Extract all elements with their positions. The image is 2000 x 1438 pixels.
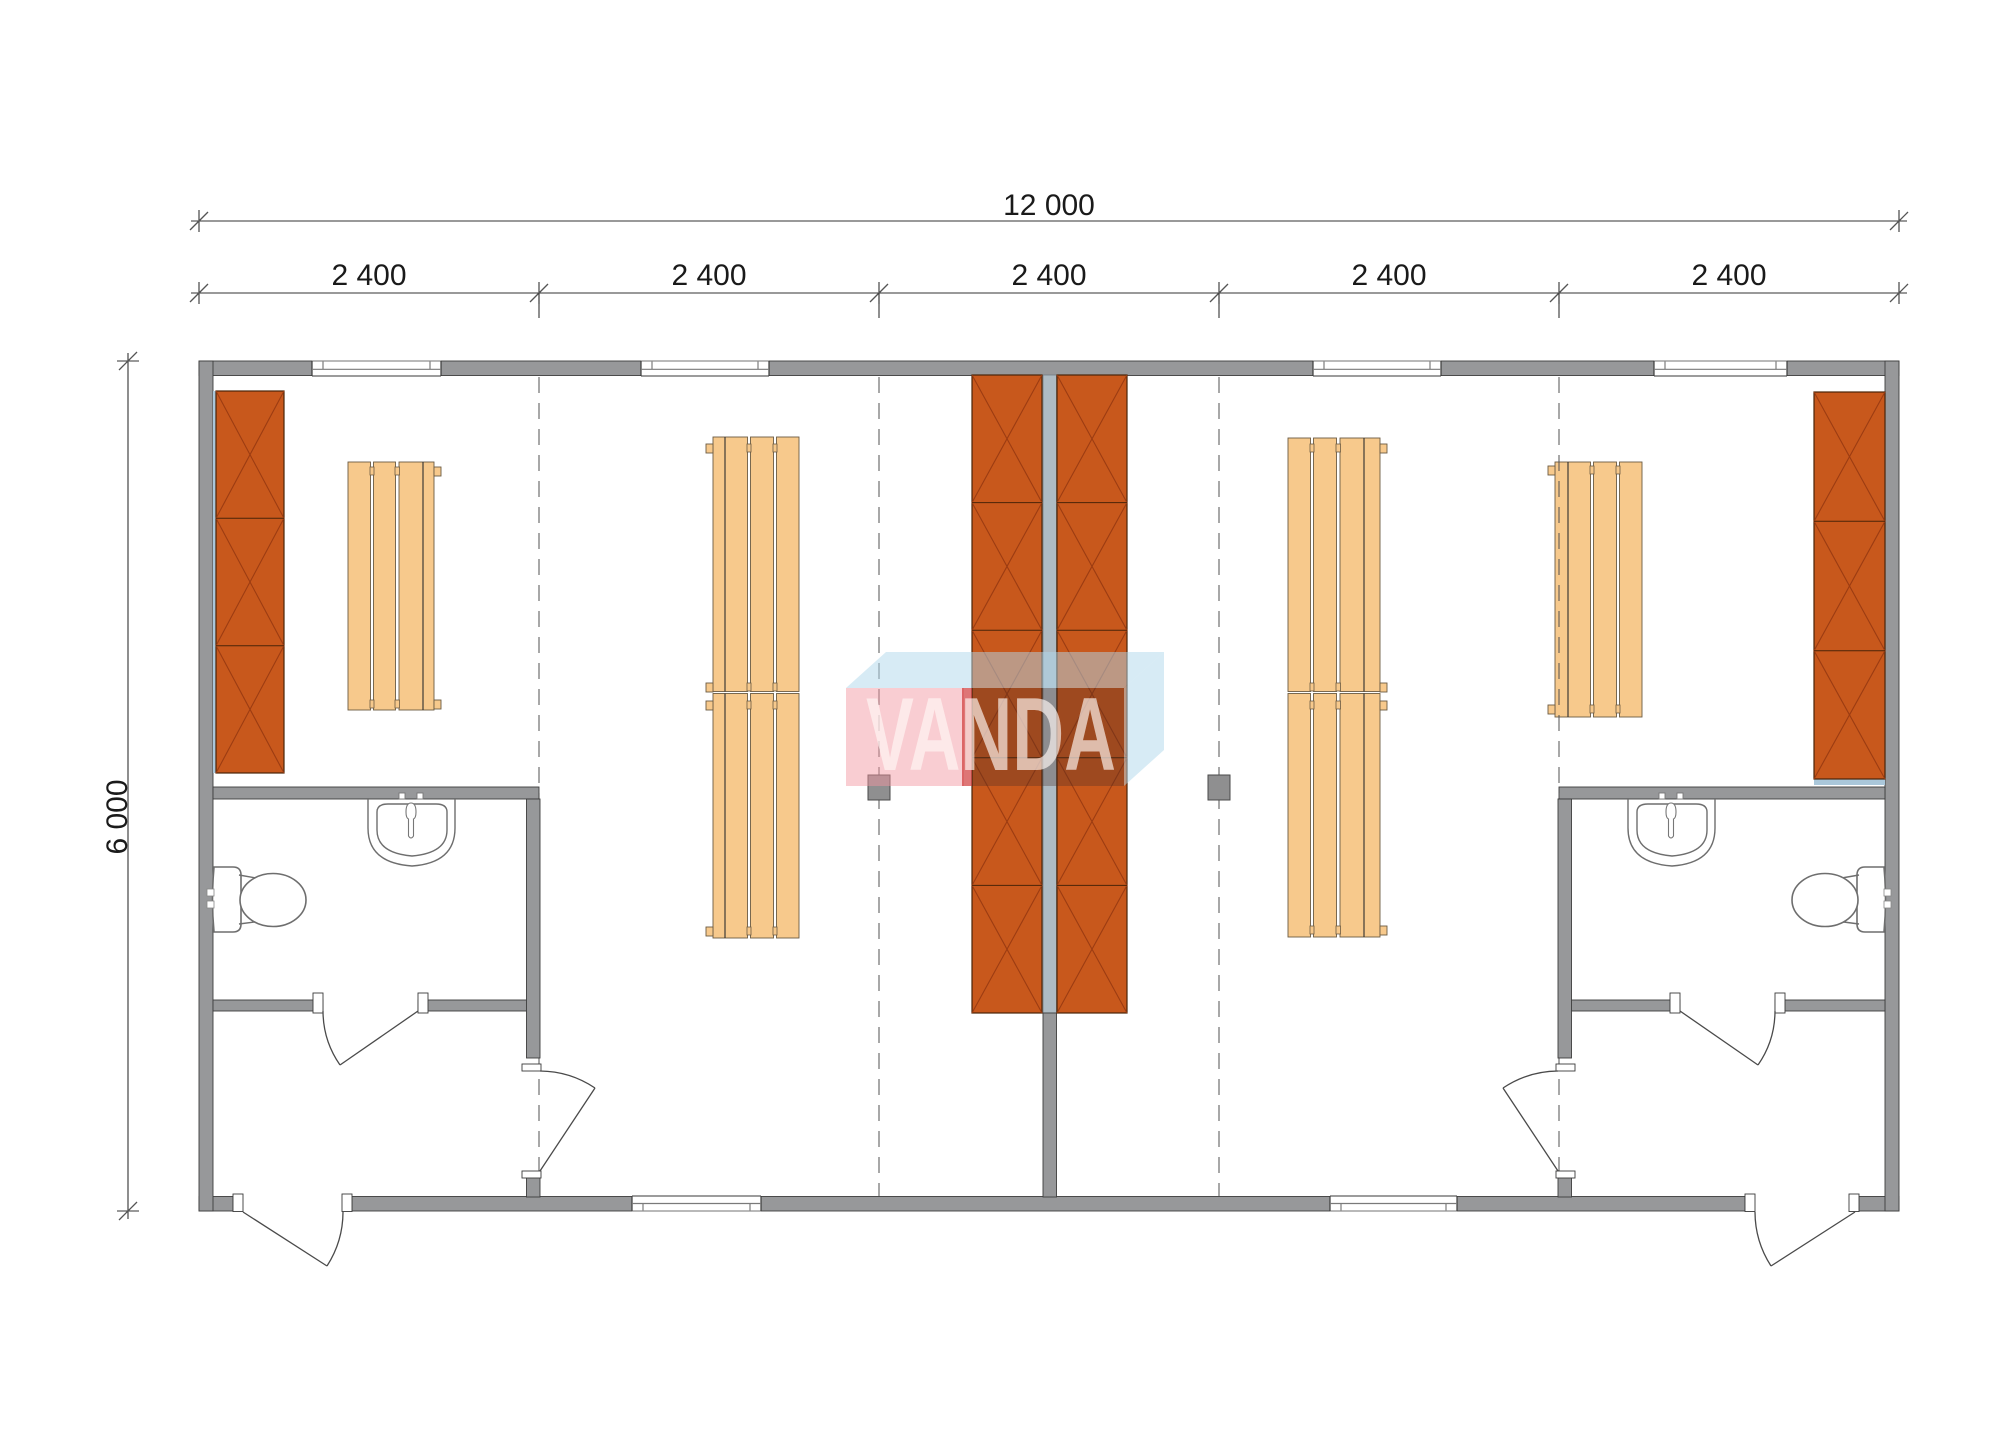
svg-text:6 000: 6 000 <box>101 779 134 854</box>
svg-text:2 400: 2 400 <box>331 259 406 292</box>
svg-text:12 000: 12 000 <box>1003 189 1095 222</box>
svg-text:VANDA: VANDA <box>866 677 1116 793</box>
svg-text:2 400: 2 400 <box>1691 259 1766 292</box>
svg-text:2 400: 2 400 <box>671 259 746 292</box>
svg-text:2 400: 2 400 <box>1011 259 1086 292</box>
svg-text:2 400: 2 400 <box>1351 259 1426 292</box>
